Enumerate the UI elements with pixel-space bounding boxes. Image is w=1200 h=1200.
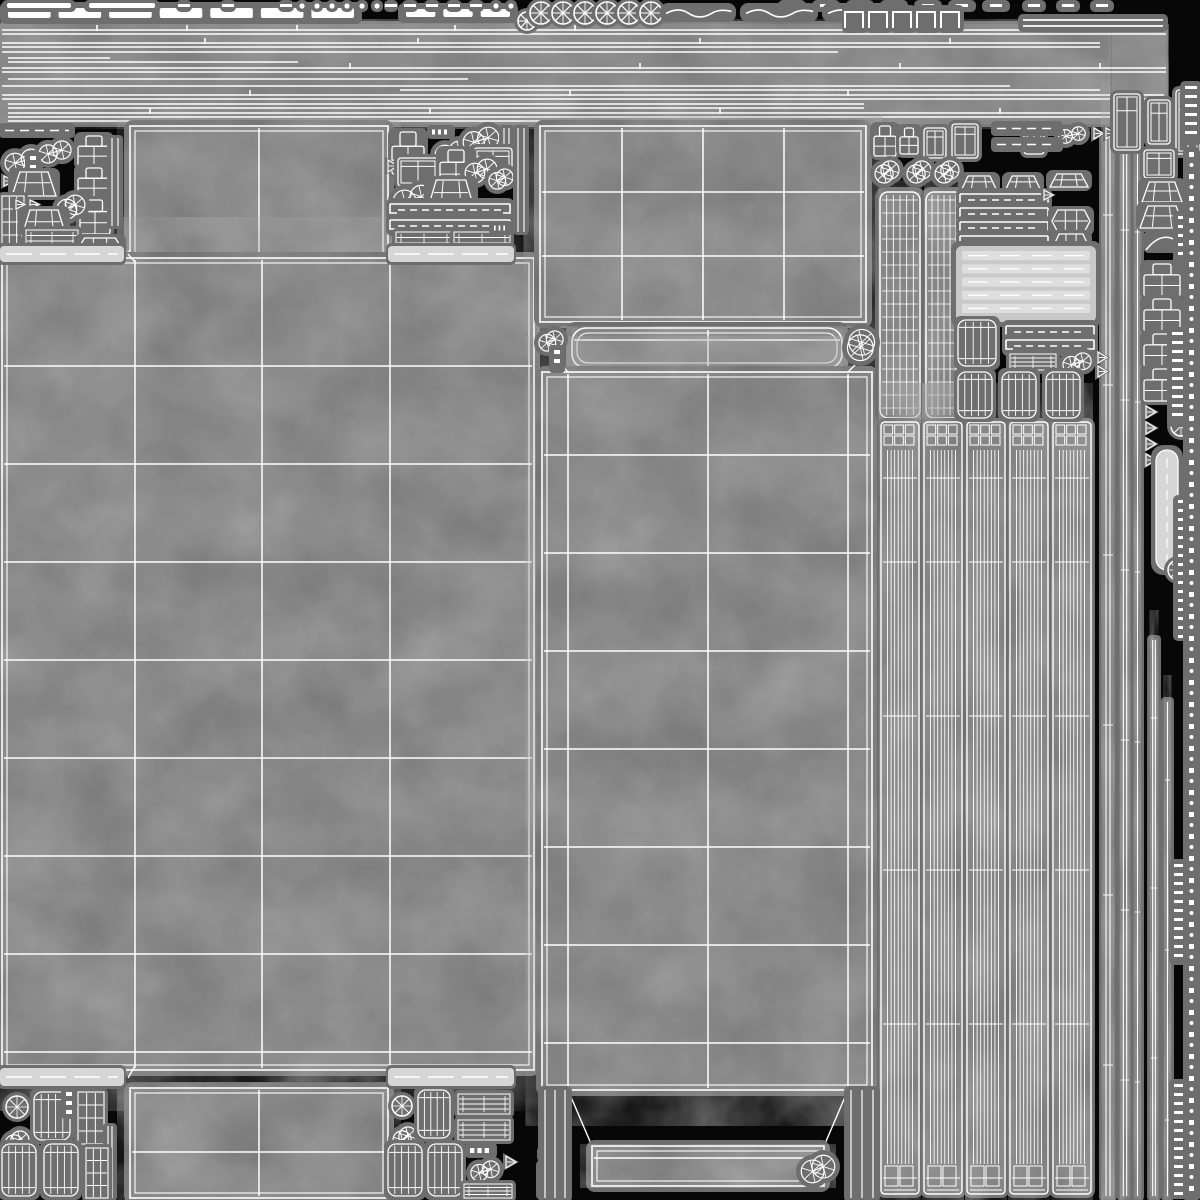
uv-island-cab [1110,90,1144,154]
uv-island-hstrip [991,137,1063,152]
uv-island-dashrow [489,221,513,235]
uv-island-rungs [1180,81,1200,145]
uv-island-jar [1140,260,1184,300]
uv-island-vdash [549,345,565,373]
uv-slat-column [963,418,1009,1198]
uv-island-vladder [74,1088,108,1148]
dot-icon [299,3,304,8]
uv-strip [1117,147,1133,1200]
panel-right-top [534,120,872,328]
uv-slat-column [1049,418,1095,1198]
panel-left-bottom-flap [124,1082,394,1200]
uv-atlas-canvas [0,0,1200,1200]
uv-island-lightbar [386,243,516,265]
uv-texture-atlas-page [0,0,1200,1200]
uv-island-vbars [538,1086,572,1200]
uv-island-hstrip [0,123,75,138]
panel-right-body [536,364,878,1146]
panel-right-bottom-band [586,1140,830,1192]
uv-strip [1147,635,1161,1200]
uv-island-barrel [998,368,1040,422]
uv-island-cab [948,120,982,162]
dot-icon [508,3,513,8]
uv-slat-column [877,418,923,1198]
uv-island-barrel [40,1140,82,1200]
uv-island-lightbar [0,243,126,265]
uv-island-trap [1046,170,1092,191]
uv-island-hbars [460,1180,516,1200]
uv-island-barrel [384,1140,426,1200]
uv-slat-column [920,418,966,1198]
uv-island-wheel [2,1092,32,1122]
uv-island-vbars [844,1086,880,1200]
uv-slat-column [1006,418,1052,1198]
uv-island-vstrip [513,125,529,235]
uv-island-vstrip [107,135,123,229]
uv-island-jar [870,122,900,160]
uv-island-wheel [388,1092,416,1120]
dot-icon [329,3,334,8]
uv-island-dashcol [1183,147,1200,1200]
uv-island-hbars [454,1090,514,1118]
uv-island-hstrip [991,121,1063,136]
uv-island-dashrow [465,1143,497,1158]
uv-atlas-root [0,0,1200,1200]
uv-island-cab [1140,146,1178,182]
uv-island-barrel [0,1140,40,1200]
uv-island-lightbar [386,1065,516,1089]
uv-island-trap [1138,178,1186,206]
uv-island-vladder [82,1144,112,1200]
uv-island-dashrow [427,125,455,139]
panel-left-body [0,252,540,1078]
uv-island-cab [1144,96,1174,148]
top-strip-band [0,21,1168,127]
uv-island-jar [896,124,922,158]
dot-icon [344,3,349,8]
uv-island-lightbar [0,1065,126,1089]
uv-island-barsrect [951,241,1101,327]
dot-icon [359,3,364,8]
dot-icon [314,3,319,8]
uv-island-barrel [414,1086,454,1142]
uv-island-barrel [424,1140,466,1200]
uv-island-barrel [954,316,1000,370]
uv-island-barrel [954,368,996,422]
uv-island-hbars [454,1116,514,1144]
uv-strip [1099,132,1117,1200]
uv-ladder-column [875,187,925,423]
dot-icon [493,3,498,8]
uv-island-barrel [1042,368,1084,422]
panel-left-top-flap [122,120,396,264]
dot-icon [374,3,379,8]
